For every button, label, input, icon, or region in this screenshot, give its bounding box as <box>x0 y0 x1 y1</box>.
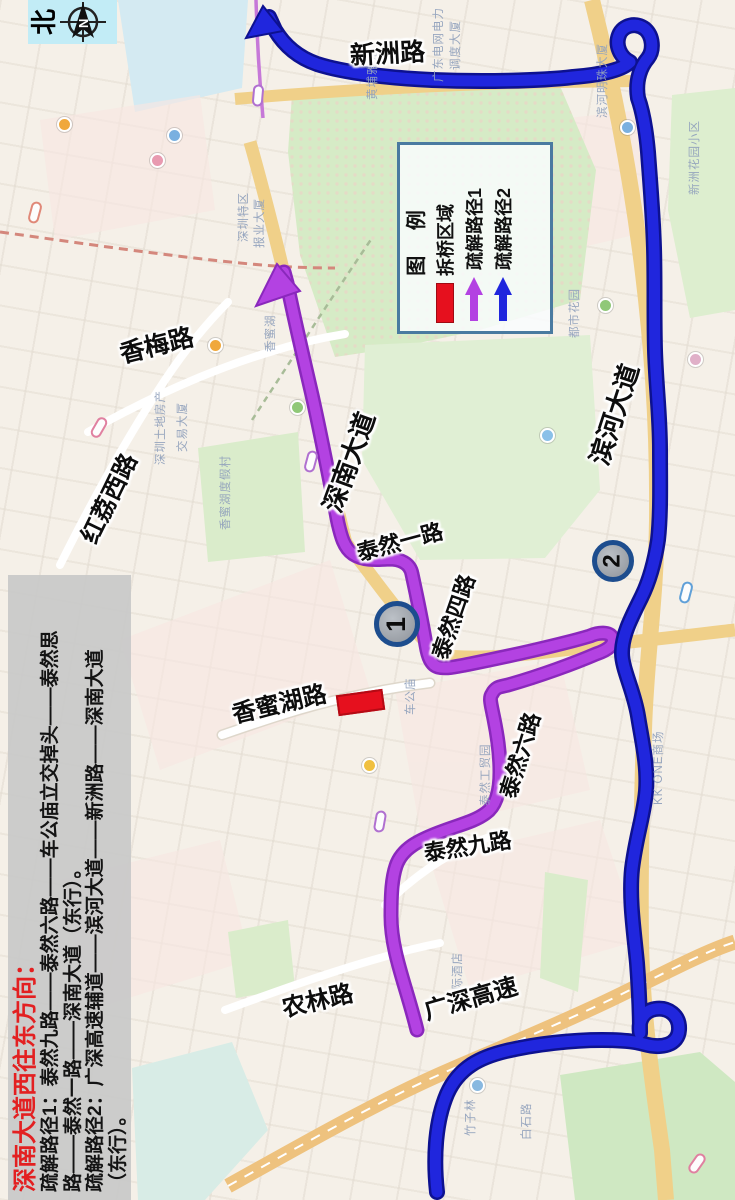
legend: 图 例 拆桥区域 疏解路径1 疏解路径2 <box>397 142 553 334</box>
road-label: 新洲路 <box>349 32 426 72</box>
map-label: 深圳土地房产 <box>152 390 168 465</box>
map-label: 白石路 <box>518 1103 534 1141</box>
legend-row-route2: 疏解路径2 <box>488 153 517 323</box>
route1-number-badge: 1 <box>374 601 420 647</box>
compass-arrow-icon: N <box>58 1 108 43</box>
route1-arrow-icon <box>464 277 484 323</box>
poi-icon <box>362 758 377 773</box>
poi-icon <box>290 400 305 415</box>
legend-label: 疏解路径2 <box>490 188 516 270</box>
map-label: 报业大厦 <box>251 198 267 248</box>
map-label: 滨河明珠大厦 <box>594 43 610 118</box>
route2-number-badge: 2 <box>592 540 634 582</box>
poi-icon <box>620 120 635 135</box>
map-label: 新洲花园小区 <box>686 120 702 195</box>
water-area <box>118 0 248 112</box>
poi-icon <box>150 153 165 168</box>
compass-n-letter: N <box>76 19 91 28</box>
map-canvas: 1 2 新洲路香梅路红荔西路深南大道泰然一路泰然四路滨河大道泰然六路泰然九路香蜜… <box>0 0 735 1200</box>
map-label: 香蜜湖度假村 <box>217 455 233 530</box>
poi-icon <box>167 128 182 143</box>
map-label: 竹子林 <box>462 1099 478 1137</box>
route2-number: 2 <box>599 554 627 567</box>
map-label: 香蜜湖 <box>262 315 278 353</box>
description-line: （东行）。 <box>108 583 131 1192</box>
description-line: 疏解路径1：泰然九路——泰然六路——车公庙立交掉头——泰然思 <box>40 583 63 1192</box>
map-label: 广东电网电力 <box>430 7 446 82</box>
route1-number: 1 <box>382 616 413 631</box>
route2-arrow-icon <box>493 277 513 323</box>
map-label: 调度大厦 <box>447 20 463 70</box>
map-label: 深圳特区 <box>235 192 251 242</box>
detour-description: 深南大道西往东方向： 疏解路径1：泰然九路——泰然六路——车公庙立交掉头——泰然… <box>8 575 131 1200</box>
legend-row-route1: 疏解路径1 <box>459 153 488 323</box>
poi-icon <box>688 352 703 367</box>
demolition-swatch <box>436 283 454 323</box>
legend-row-demolition: 拆桥区域 <box>430 153 459 323</box>
description-line: 路——泰然一路——深南大道（东行）。 <box>63 583 86 1192</box>
legend-title: 图 例 <box>404 153 430 323</box>
legend-label: 疏解路径1 <box>461 188 487 270</box>
compass: 北 N <box>28 0 117 44</box>
poi-icon <box>57 117 72 132</box>
map-label: 都市花园 <box>566 288 582 338</box>
map-label: 泰然工贸园 <box>477 744 493 807</box>
poi-icon <box>470 1078 485 1093</box>
description-title: 深南大道西往东方向： <box>12 952 39 1192</box>
poi-icon <box>208 338 223 353</box>
description-line: 疏解路径2：广深高速辅道——滨河大道——新洲路——深南大道 <box>85 583 108 1192</box>
poi-icon <box>598 298 613 313</box>
legend-label: 拆桥区域 <box>432 204 458 276</box>
map-label: 车公庙 <box>402 678 418 716</box>
poi-icon <box>540 428 555 443</box>
map-label: 交易大厦 <box>174 402 190 452</box>
map-label: KK ONE商场 <box>650 731 666 805</box>
compass-north-label: 北 <box>30 9 58 35</box>
